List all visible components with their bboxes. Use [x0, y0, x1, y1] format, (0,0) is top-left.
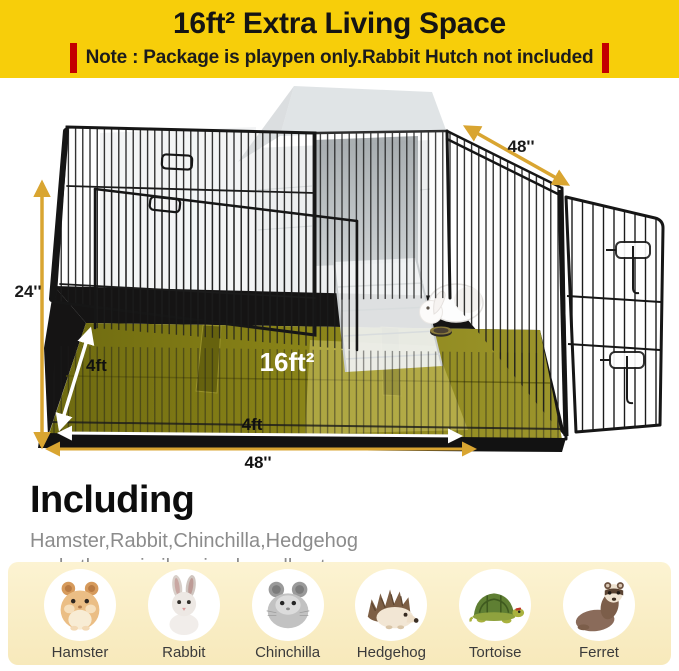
tortoise-icon [464, 574, 526, 636]
ferret-icon [568, 574, 630, 636]
pet-label: Chinchilla [255, 644, 320, 661]
pet-label: Hamster [52, 644, 109, 661]
pen-door [560, 190, 663, 436]
pet-circle [459, 569, 531, 641]
pet-label: Rabbit [162, 644, 205, 661]
floor-depth-label: 4ft [86, 356, 107, 375]
including-heading: Including [30, 479, 358, 522]
pen-panels [38, 127, 566, 452]
hedgehog-icon [360, 574, 422, 636]
height-label: 24'' [15, 282, 42, 301]
area-label: 16ft² [260, 347, 315, 377]
pet-circle [44, 569, 116, 641]
hamster-icon [49, 574, 111, 636]
note-row: Note : Package is playpen only.Rabbit Hu… [70, 43, 610, 73]
pet-label: Tortoise [469, 644, 522, 661]
pet-circle [252, 569, 324, 641]
pet-card-chinchilla: Chinchilla [238, 569, 338, 661]
rabbit-icon [153, 574, 215, 636]
pet-label: Hedgehog [357, 644, 426, 661]
pet-card-ferret: Ferret [549, 569, 649, 661]
total-width-label: 48'' [245, 453, 272, 472]
pet-card-hamster: Hamster [30, 569, 130, 661]
pet-label: Ferret [579, 644, 619, 661]
pet-card-hedgehog: Hedgehog [341, 569, 441, 661]
including-line1: Hamster,Rabbit,Chinchilla,Hedgehog [30, 528, 358, 554]
pet-card-tortoise: Tortoise [445, 569, 545, 661]
panel-width-label: 48'' [508, 137, 535, 156]
pet-card-rabbit: Rabbit [134, 569, 234, 661]
chinchilla-icon [257, 574, 319, 636]
product-image: 16ft² Extra Living Space Note : Package … [0, 0, 679, 671]
note-end-bar-left [70, 43, 77, 73]
pet-circle [148, 569, 220, 641]
header-banner: 16ft² Extra Living Space Note : Package … [0, 0, 679, 78]
pet-circle [355, 569, 427, 641]
page-title: 16ft² Extra Living Space [173, 7, 506, 41]
note-text: Note : Package is playpen only.Rabbit Hu… [86, 47, 594, 69]
pets-panel: Hamster Rabbit [8, 562, 671, 665]
floor-front-label: 4ft [242, 415, 263, 434]
note-end-bar-right [602, 43, 609, 73]
food-bowl [430, 327, 452, 337]
pet-circle [563, 569, 635, 641]
